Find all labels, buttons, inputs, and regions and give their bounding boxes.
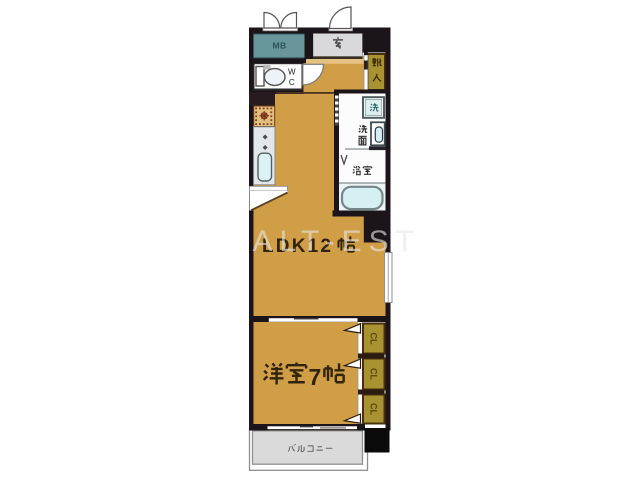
- svg-text:MB: MB: [272, 41, 286, 51]
- svg-text:CL: CL: [369, 368, 379, 380]
- svg-text:C: C: [289, 78, 295, 87]
- svg-text:CL: CL: [369, 403, 379, 415]
- svg-text:W: W: [288, 68, 296, 77]
- svg-text:ALT-EST: ALT-EST: [253, 225, 421, 258]
- svg-text:CL: CL: [369, 333, 379, 345]
- svg-text:7: 7: [309, 364, 322, 390]
